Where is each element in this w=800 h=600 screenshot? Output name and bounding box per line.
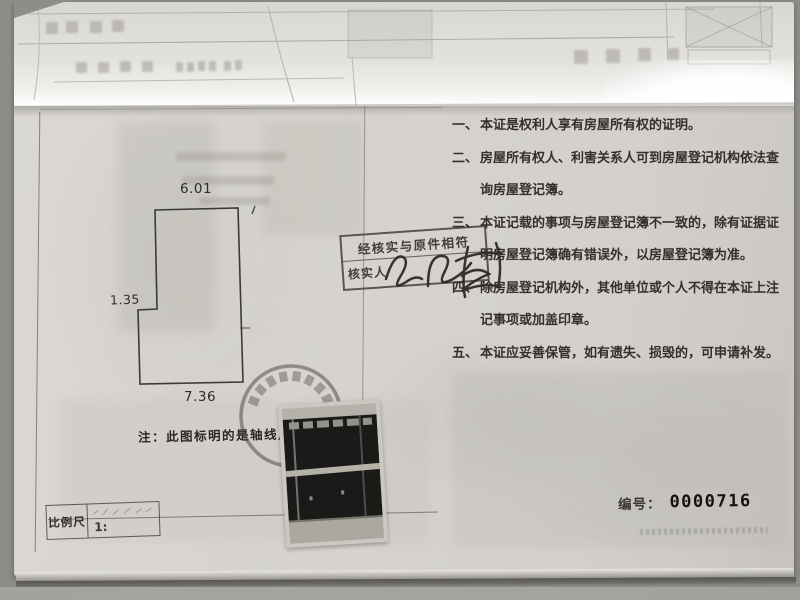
pencil-marks — [89, 503, 160, 521]
scale-value: 1: — [94, 520, 108, 534]
term-number: 四、 — [452, 273, 478, 306]
photo-floor-band — [286, 463, 380, 477]
serial-number: 0000716 — [664, 491, 756, 512]
building-photo-image — [282, 403, 384, 543]
terms-list: 一、本证是权利人享有房屋所有权的证明。 二、房屋所有权人、利害关系人可到房屋登记… — [452, 110, 786, 370]
term-text: 本证记载的事项与房屋登记簿不一致的，除有证据证明房屋登记簿确有错误外，以房屋登记… — [480, 216, 779, 264]
term-item-2: 二、房屋所有权人、利害关系人可到房屋登记机构依法查询房屋登记簿。 — [452, 143, 786, 208]
dimension-left-step: 1.35 — [110, 291, 140, 307]
serial-number-row: 编号： 0000716 — [618, 491, 757, 513]
term-item-3: 三、本证记载的事项与房屋登记簿不一致的，除有证据证明房屋登记簿确有错误外，以房屋… — [452, 208, 786, 273]
term-text: 房屋所有权人、利害关系人可到房屋登记机构依法查询房屋登记簿。 — [480, 151, 779, 199]
term-item-5: 五、本证应妥善保管，如有遗失、损毁的，可申请补发。 — [452, 338, 786, 371]
scale-label: 比例尺 — [46, 505, 88, 539]
term-number: 二、 — [452, 143, 478, 176]
scale-value-cell: 1: — [87, 502, 159, 537]
term-text: 本证应妥善保管，如有遗失、损毁的，可申请补发。 — [480, 346, 779, 361]
bleed-through-patch — [452, 372, 788, 547]
term-number: 五、 — [452, 338, 478, 371]
scale-table: 比例尺 1: — [45, 501, 160, 540]
term-number: 一、 — [452, 110, 478, 143]
building-photo — [278, 399, 389, 548]
dimension-top: 6.01 — [180, 181, 212, 197]
term-item-4: 四、除房屋登记机构外，其他单位或个人不得在本证上注记事项或加盖印章。 — [452, 273, 786, 338]
term-item-1: 一、本证是权利人享有房屋所有权的证明。 — [452, 110, 786, 143]
curled-page-top — [14, 2, 794, 106]
term-text: 除房屋登记机构外，其他单位或个人不得在本证上注记事项或加盖印章。 — [480, 281, 779, 329]
ghost-text — [176, 152, 286, 161]
photo-building-facade — [283, 414, 383, 523]
term-text: 本证是权利人享有房屋所有权的证明。 — [480, 118, 701, 133]
serial-label: 编号： — [618, 492, 662, 513]
term-number: 三、 — [452, 208, 478, 241]
dimension-bottom: 7.36 — [184, 389, 216, 405]
desk-surface — [0, 587, 800, 600]
photographed-certificate-page: 6.01 14.48 1.35 7.36 注：此图标明的是轴线尺寸 比例尺 1: — [0, 0, 800, 600]
photo-ground-strip — [289, 515, 384, 544]
page-roll-highlight — [604, 60, 794, 106]
